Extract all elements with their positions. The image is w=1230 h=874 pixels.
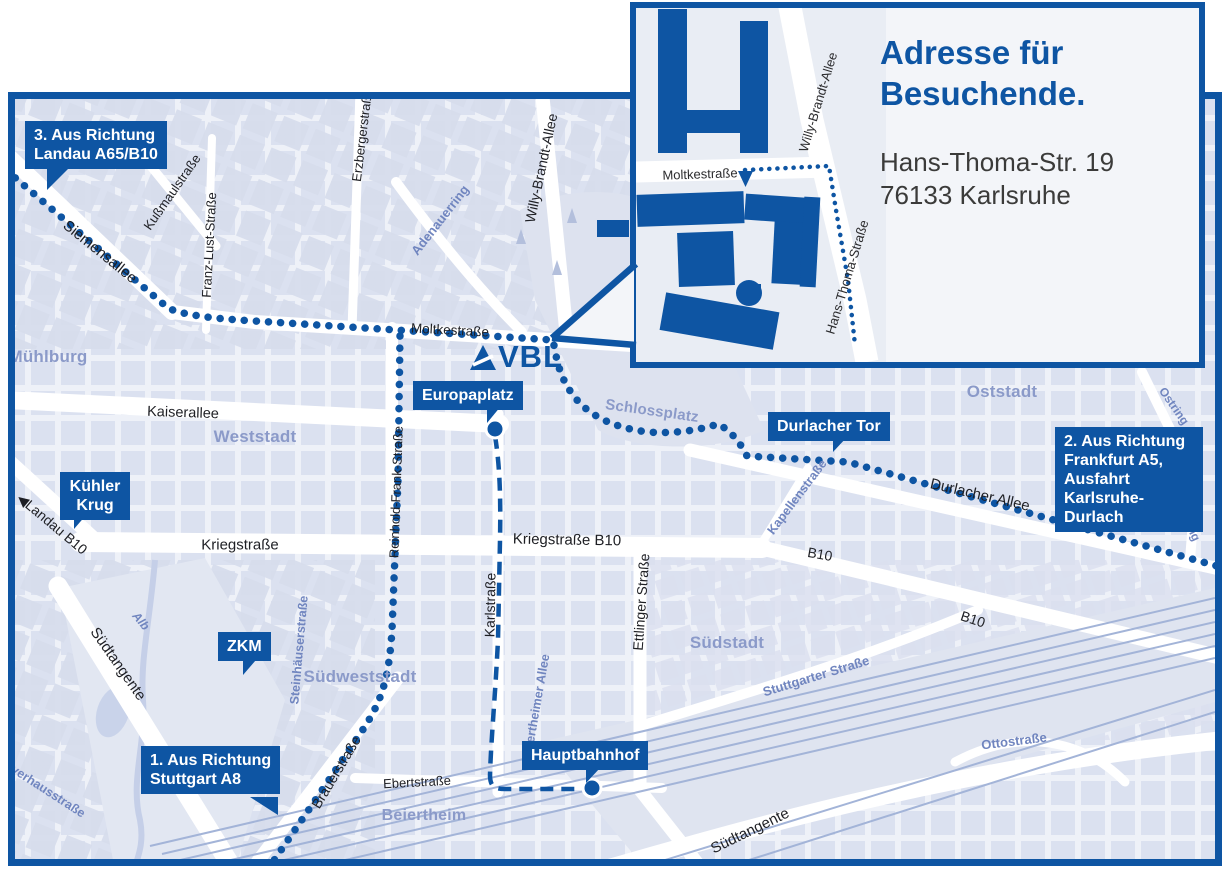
district-label: Beiertheim <box>382 807 467 825</box>
callout-line: Frankfurt A5, <box>1064 451 1194 470</box>
callout-line: 1. Aus Richtung <box>150 751 271 770</box>
callout-tail <box>586 768 600 783</box>
street-label: Erzbergerstraße <box>349 87 375 182</box>
callout-kuehler-krug: Kühler Krug <box>60 472 130 520</box>
street-label: B10 <box>806 544 833 564</box>
callout-frankfurt: 2. Aus Richtung Frankfurt A5, Ausfahrt K… <box>1055 427 1203 532</box>
callout-tail <box>243 660 256 675</box>
vbl-triangle-icon <box>468 342 498 372</box>
district-label: Oststadt <box>967 382 1038 402</box>
callout-line: Landau A65/B10 <box>34 145 158 164</box>
callout-europaplatz: Europaplatz <box>413 381 523 410</box>
callout-landau: 3. Aus Richtung Landau A65/B10 <box>25 121 167 169</box>
district-label: Weststadt <box>214 427 297 447</box>
street-label: Kaiserallee <box>147 404 219 422</box>
inset-title: Adresse für Besuchende. <box>880 32 1085 114</box>
street-label: Durlacher Allee <box>929 475 1032 514</box>
street-label: Kapellenstraße <box>764 457 829 537</box>
callout-line: Ausfahrt <box>1064 470 1194 489</box>
callout-hauptbahnhof: Hauptbahnhof <box>522 741 648 770</box>
callout-line: Krug <box>69 496 121 515</box>
city-map: Siemensallee Kußmaulstraße Franz-Lust-St… <box>0 0 1230 874</box>
inset-title-line: Besuchende. <box>880 73 1085 114</box>
callout-line: Europaplatz <box>422 386 514 405</box>
callout-line: Hauptbahnhof <box>531 746 639 765</box>
inset-address-line: 76133 Karlsruhe <box>880 179 1114 212</box>
callout-stuttgart: 1. Aus Richtung Stuttgart A8 <box>141 746 280 794</box>
street-label: Südtangente <box>87 624 150 703</box>
callout-line: 2. Aus Richtung <box>1064 432 1194 451</box>
inset-address-line: Hans-Thoma-Str. 19 <box>880 146 1114 179</box>
inset-address: Hans-Thoma-Str. 19 76133 Karlsruhe <box>880 146 1114 212</box>
street-label: Ottostraße <box>980 730 1047 753</box>
vbl-logo-text: VBL <box>498 341 563 372</box>
street-label: Kriegstraße B10 <box>513 531 622 550</box>
inset-street-label: Moltkestraße <box>662 165 738 183</box>
vbl-logo: VBL <box>468 341 563 372</box>
street-label: Moltkestraße <box>411 320 490 339</box>
district-label: Südstadt <box>690 633 764 653</box>
street-label: Adenauerring <box>408 182 472 258</box>
inset-title-line: Adresse für <box>880 32 1085 73</box>
callout-zkm: ZKM <box>218 632 271 661</box>
street-label: Siemensallee <box>60 217 141 287</box>
district-label: Mühlburg <box>8 347 87 367</box>
callout-durlacher-tor: Durlacher Tor <box>768 412 890 441</box>
callout-tail <box>47 169 68 190</box>
callout-line: ZKM <box>227 637 262 656</box>
callout-line: Karlsruhe-Durlach <box>1064 489 1194 527</box>
street-label: Franz-Lust-Straße <box>199 192 220 298</box>
callout-line: Kühler <box>69 477 121 496</box>
street-label: Steinhäuserstraße <box>287 595 310 705</box>
street-label: B10 <box>959 608 988 631</box>
street-label: Südtangente <box>708 805 792 858</box>
street-label: Ostring <box>1156 385 1192 428</box>
street-label: Brauerstraße <box>308 733 364 811</box>
river-label: Alb <box>129 609 152 633</box>
address-inset: Moltkestraße Willy-Brandt-Allee Hans-Tho… <box>630 2 1205 368</box>
callout-line: 3. Aus Richtung <box>34 126 158 145</box>
district-label: Schlossplatz <box>604 396 700 426</box>
street-label: Karlstraße <box>481 573 498 638</box>
street-label: Stuttgarter Straße <box>761 653 871 700</box>
street-label: Kriegstraße <box>201 537 279 554</box>
callout-line: Durlacher Tor <box>777 417 881 436</box>
street-label: Reinhold-Frank-Straße <box>386 426 406 559</box>
callout-tail <box>250 797 278 815</box>
street-label: Willy-Brandt-Allee <box>522 112 561 224</box>
street-label: Ettlinger Straße <box>630 553 653 651</box>
district-label: Südweststadt <box>304 667 417 687</box>
street-label: Ebertstraße <box>383 773 452 792</box>
callout-line: Stuttgart A8 <box>150 770 271 789</box>
